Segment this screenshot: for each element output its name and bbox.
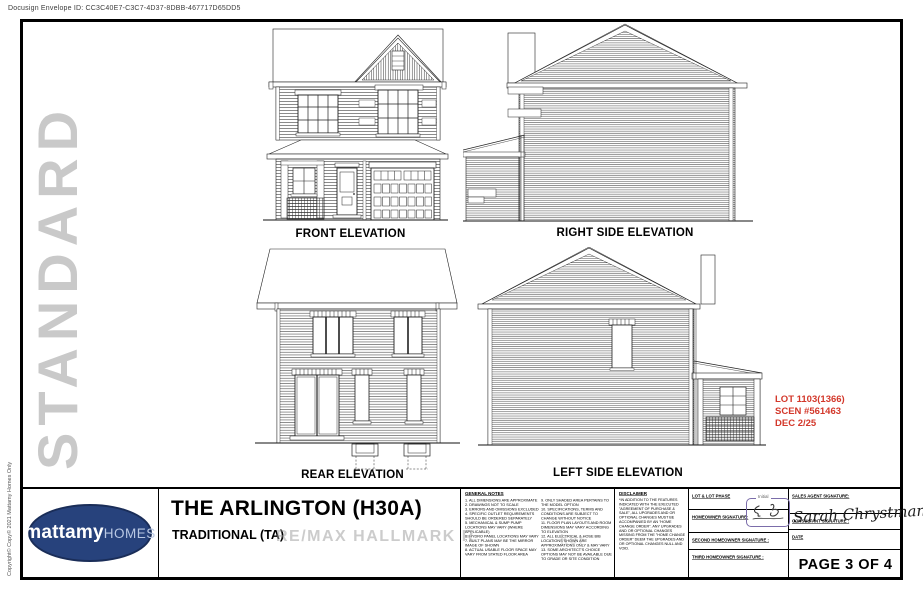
right-side-elevation-label: RIGHT SIDE ELEVATION: [535, 227, 715, 239]
lot-phase-label: LOT & LOT PHASE: [692, 494, 730, 499]
left-side-elevation-drawing: [468, 247, 768, 457]
lot-annotation: LOT 1103(1366) SCEN #561463 DEC 2/25: [775, 394, 885, 430]
realtor-watermark: RE/MAX HALLMARK R: [276, 528, 475, 546]
logo-brand-primary: mattamy: [24, 522, 104, 543]
mattamy-homes-logo: mattamyHOMES: [28, 504, 152, 562]
sales-agent-signature-label: SALES AGENT SIGNATURE:: [792, 494, 849, 499]
rear-elevation-label: REAR ELEVATION: [280, 469, 425, 481]
model-style: TRADITIONAL (TA): [172, 528, 284, 542]
general-notes-heading: GENERAL NOTES: [465, 491, 504, 496]
disclaimer-body: *IN ADDITION TO THE FEATURES INDICATED W…: [619, 498, 686, 551]
logo-brand-secondary: HOMES: [104, 526, 156, 541]
front-elevation-drawing: [243, 22, 460, 222]
third-homeowner-signature-label: THIRD HOMEOWNER SIGNATURE :: [692, 555, 764, 560]
signature-column-right: SALES AGENT SIGNATURE: CONSULTANT SIGNAT…: [788, 489, 901, 580]
general-notes-column-1: 1. ALL DIMENSIONS ARE APPROXIMATE 2. DRA…: [465, 498, 539, 557]
second-homeowner-signature-row: SECOND HOMEOWNER SIGNATURE :: [689, 533, 788, 550]
disclaimer-heading: DISCLAIMER: [619, 491, 647, 496]
architectural-sheet-scan: { "header": { "docusign_envelope": "Docu…: [0, 0, 923, 594]
general-notes-column-2: 9. ONLY SHADED AREA PERTAINS TO THE MODE…: [541, 498, 613, 561]
homeowner-signature-label: HOMEOWNER SIGNATURE:: [692, 515, 748, 520]
initial-stamp-caption: Initial: [756, 495, 771, 500]
general-notes-cell: GENERAL NOTES 1. ALL DIMENSIONS ARE APPR…: [460, 489, 614, 580]
initials-scribble: [747, 499, 788, 525]
docusign-envelope-id: Docusign Envelope ID: CC3C40E7-C3C7-4D37…: [8, 5, 241, 12]
realtor-watermark-fragment: ker: [560, 531, 586, 547]
page-indicator: PAGE 3 OF 4: [789, 550, 902, 580]
third-homeowner-signature-row: THIRD HOMEOWNER SIGNATURE :: [689, 550, 788, 580]
front-elevation-label: FRONT ELEVATION: [278, 228, 423, 240]
model-name: THE ARLINGTON (H30A): [171, 497, 422, 521]
logo-cell: mattamyHOMES: [21, 489, 158, 580]
date-label: DATE: [792, 535, 803, 540]
standard-label: STANDARD: [30, 62, 86, 470]
date-row: DATE: [789, 530, 901, 550]
second-homeowner-signature-label: SECOND HOMEOWNER SIGNATURE :: [692, 538, 769, 543]
docusign-initial-stamp: Initial: [746, 498, 790, 527]
disclaimer-cell: DISCLAIMER *IN ADDITION TO THE FEATURES …: [614, 489, 688, 580]
rear-elevation-drawing: [255, 247, 460, 475]
left-side-elevation-label: LEFT SIDE ELEVATION: [528, 467, 708, 479]
copyright-note: Copyright© Copy© 2021 Mattamy Homes Only: [7, 466, 13, 576]
right-side-elevation-drawing: [463, 23, 758, 228]
